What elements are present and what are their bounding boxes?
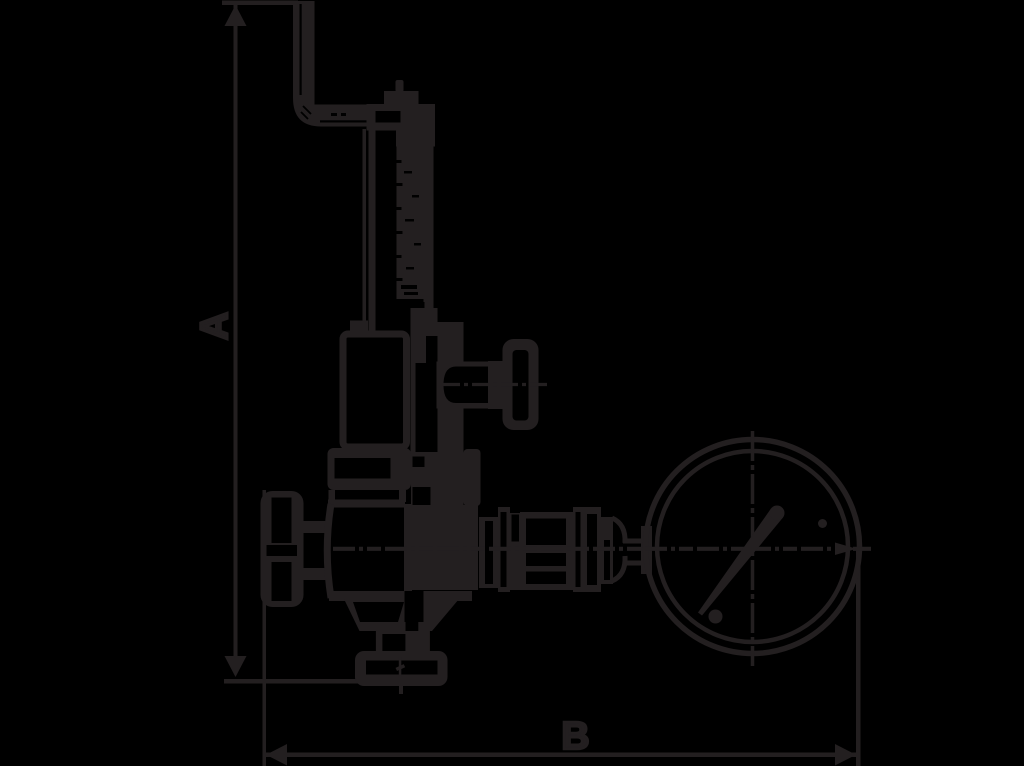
svg-text:A: A	[194, 312, 237, 340]
svg-text:B: B	[561, 715, 589, 758]
